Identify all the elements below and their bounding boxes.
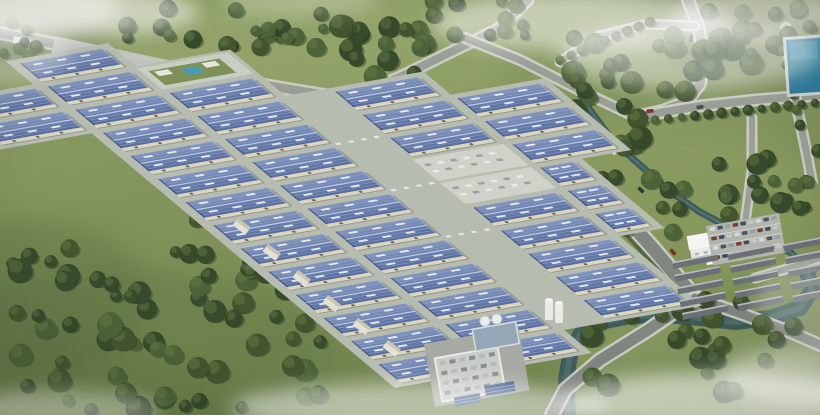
aerial-render-figure (0, 0, 820, 415)
industrial-park-aerial-scene (0, 0, 820, 415)
fog-and-vignette-layer (0, 0, 820, 415)
